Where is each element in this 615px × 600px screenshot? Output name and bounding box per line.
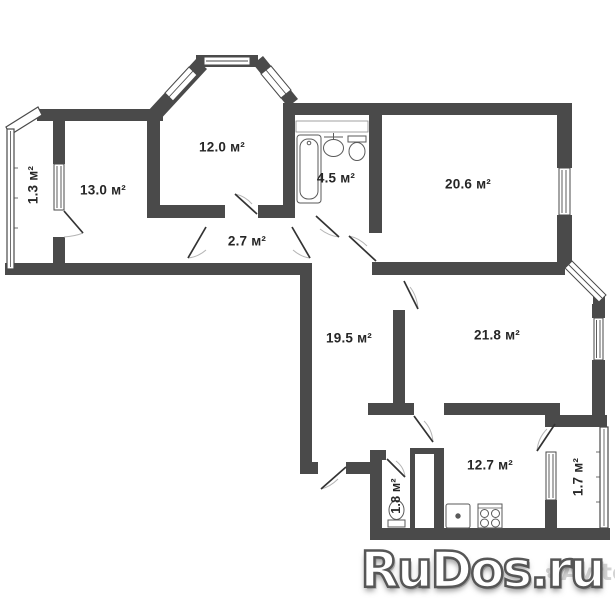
room-label-bedroom-top: 12.0 м² bbox=[199, 140, 245, 155]
room-label-balcony-left: 1.3 м² bbox=[26, 166, 41, 204]
toilet bbox=[348, 136, 366, 142]
room-label-kitchen: 12.7 м² bbox=[467, 458, 513, 473]
room-label-bedroom-right: 21.8 м² bbox=[474, 328, 520, 343]
watermark-rudos: RuDos.ru bbox=[352, 541, 612, 599]
floor-plan: 1.3 м² 13.0 м² 12.0 м² 4.5 м² 20.6 м² 2.… bbox=[0, 0, 615, 600]
room-label-corridor: 2.7 м² bbox=[228, 234, 266, 249]
duct-shaft bbox=[415, 454, 434, 528]
sink bbox=[324, 140, 344, 157]
room-label-living-room: 20.6 м² bbox=[445, 177, 491, 192]
floor-plan-drawing bbox=[0, 0, 615, 600]
room-label-bedroom-left: 13.0 м² bbox=[80, 183, 126, 198]
room-label-wc: 1.8 м² bbox=[389, 478, 403, 513]
room-label-bathroom: 4.5 м² bbox=[317, 171, 355, 186]
room-label-hall: 19.5 м² bbox=[326, 331, 372, 346]
room-label-balcony-bottom: 1.7 м² bbox=[571, 458, 586, 496]
kitchen-fixtures bbox=[446, 504, 502, 528]
bathroom-fixtures bbox=[296, 121, 368, 203]
